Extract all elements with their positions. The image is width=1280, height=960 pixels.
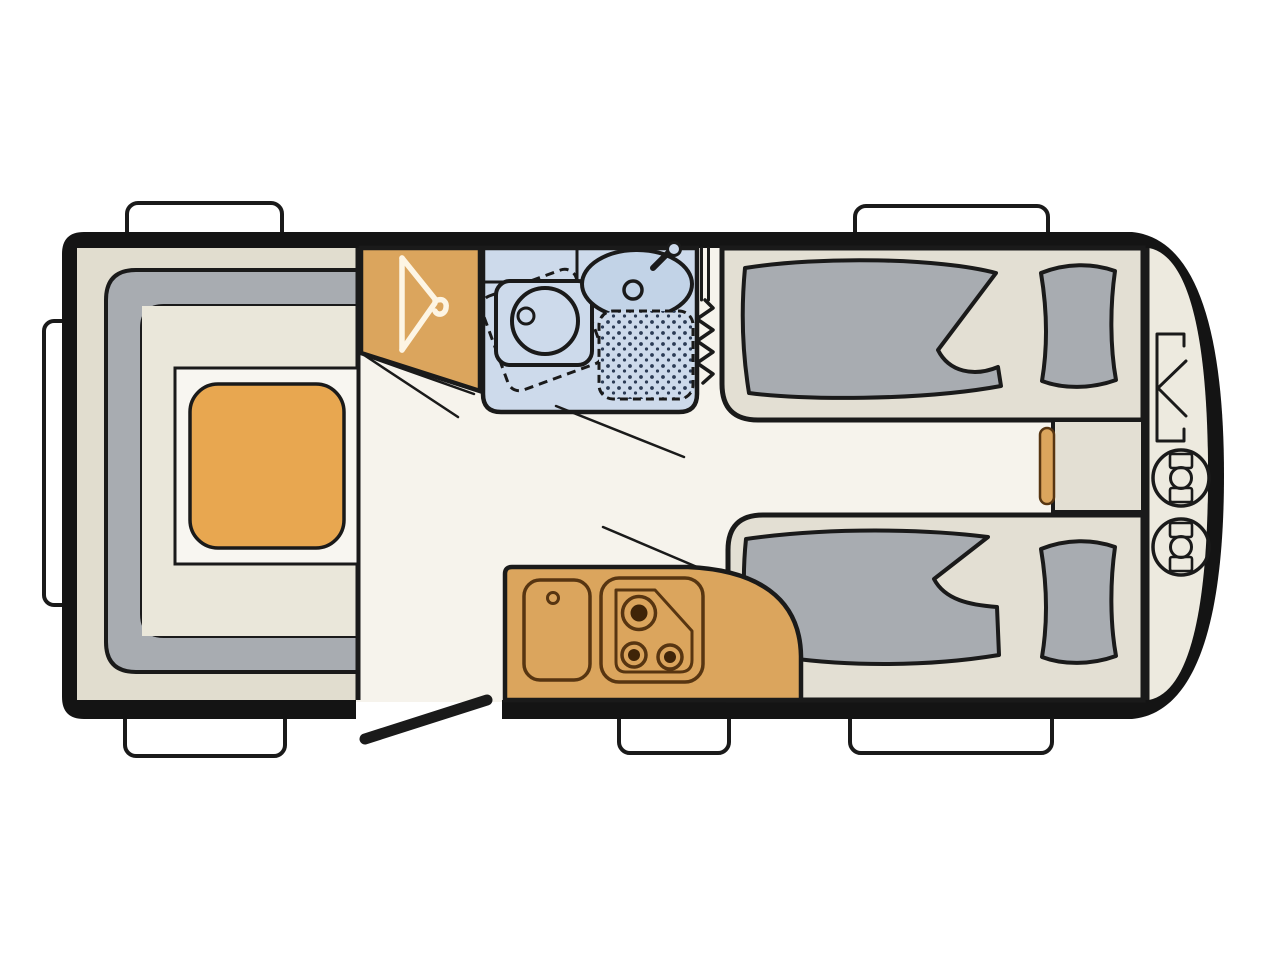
- chest-body: [1053, 420, 1143, 512]
- floorplan-page: [0, 0, 1280, 960]
- washroom: [478, 243, 697, 413]
- kitchen: [505, 567, 801, 700]
- hob-burner-small-center: [628, 649, 640, 661]
- bed-bottom-pillow: [1041, 541, 1116, 663]
- caravan-floorplan: [0, 0, 1280, 960]
- hob-burner-small-center: [664, 651, 676, 663]
- lounge-dinette: [77, 248, 358, 700]
- basin-tap-head: [668, 243, 681, 256]
- shower-tray: [599, 311, 693, 399]
- basin-drain: [624, 281, 642, 299]
- hob-burner-large-center: [631, 605, 648, 622]
- toilet-flush-button: [518, 308, 534, 324]
- dinette-table: [175, 368, 358, 564]
- bedside-chest: [1040, 420, 1143, 512]
- table-top: [190, 384, 344, 548]
- bed-top-pillow: [1041, 265, 1116, 387]
- chest-drawer-front: [1040, 428, 1054, 504]
- single-bed-top: [722, 248, 1143, 420]
